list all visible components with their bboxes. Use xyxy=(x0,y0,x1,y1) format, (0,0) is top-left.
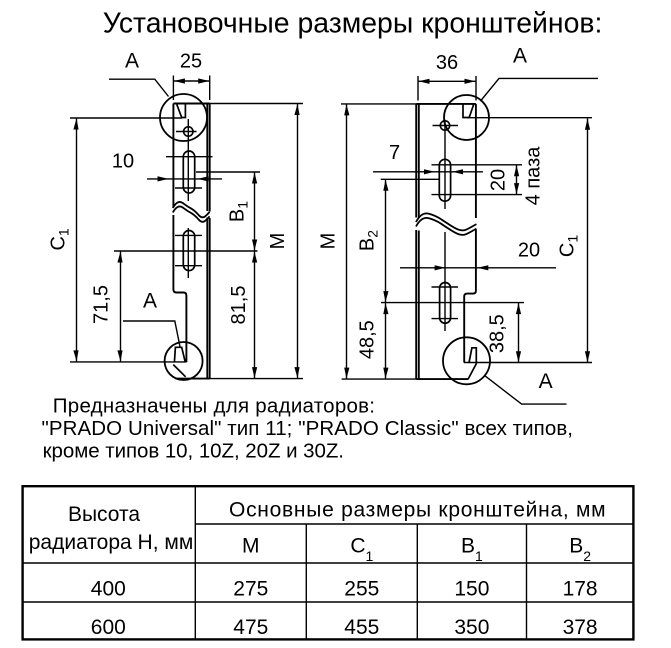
svg-text:A: A xyxy=(125,49,139,72)
svg-text:20: 20 xyxy=(487,169,509,191)
svg-text:275: 275 xyxy=(233,578,268,601)
svg-text:A: A xyxy=(143,289,157,312)
svg-text:A: A xyxy=(539,370,553,393)
svg-text:A: A xyxy=(513,45,527,68)
svg-text:М: М xyxy=(317,233,339,250)
svg-text:7: 7 xyxy=(389,142,400,164)
svg-text:36: 36 xyxy=(436,52,458,74)
svg-text:600: 600 xyxy=(91,616,126,639)
svg-text:350: 350 xyxy=(454,616,489,639)
svg-text:255: 255 xyxy=(344,578,379,601)
svg-text:4 паза: 4 паза xyxy=(522,146,544,206)
svg-text:71,5: 71,5 xyxy=(90,285,112,324)
svg-text:Высота: Высота xyxy=(68,503,140,526)
svg-text:25: 25 xyxy=(180,51,202,73)
svg-text:378: 378 xyxy=(563,616,598,639)
svg-text:455: 455 xyxy=(344,616,379,639)
svg-text:М: М xyxy=(267,233,289,250)
svg-text:10: 10 xyxy=(112,150,134,172)
svg-text:"PRADO Universal" тип 11; "PRA: "PRADO Universal" тип 11; "PRADO Classic… xyxy=(42,417,574,440)
svg-text:48,5: 48,5 xyxy=(356,320,378,359)
svg-text:радиатора Н, мм: радиатора Н, мм xyxy=(29,531,194,554)
svg-text:кроме типов 10, 10Z, 20Z и 30Z: кроме типов 10, 10Z, 20Z и 30Z. xyxy=(43,440,344,463)
svg-text:150: 150 xyxy=(454,578,489,601)
svg-text:81,5: 81,5 xyxy=(228,286,250,325)
svg-text:Основные размеры кронштейна, м: Основные размеры кронштейна, мм xyxy=(229,498,606,521)
svg-text:Предназначены для радиаторов:: Предназначены для радиаторов: xyxy=(53,394,375,417)
svg-text:475: 475 xyxy=(233,616,268,639)
svg-text:400: 400 xyxy=(91,578,126,601)
svg-text:Установочные размеры кронштейн: Установочные размеры кронштейнов: xyxy=(103,8,603,40)
svg-text:М: М xyxy=(242,535,260,558)
svg-text:20: 20 xyxy=(518,239,540,261)
svg-text:38,5: 38,5 xyxy=(487,314,509,353)
svg-text:178: 178 xyxy=(563,578,598,601)
